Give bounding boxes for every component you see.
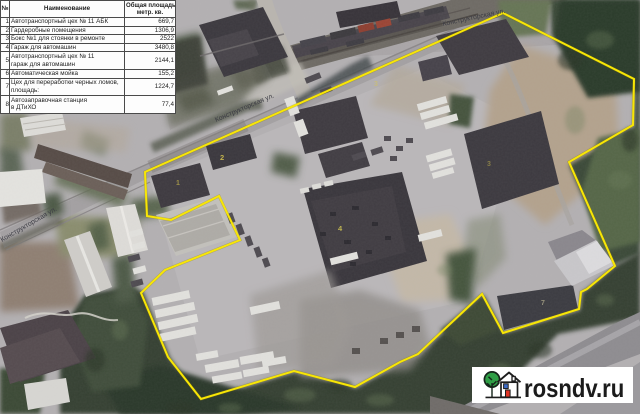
svg-text:3: 3 [374, 81, 378, 88]
svg-text:7: 7 [541, 300, 545, 307]
svg-text:2: 2 [220, 153, 224, 162]
svg-text:3: 3 [487, 161, 491, 168]
svg-text:1: 1 [176, 180, 180, 187]
